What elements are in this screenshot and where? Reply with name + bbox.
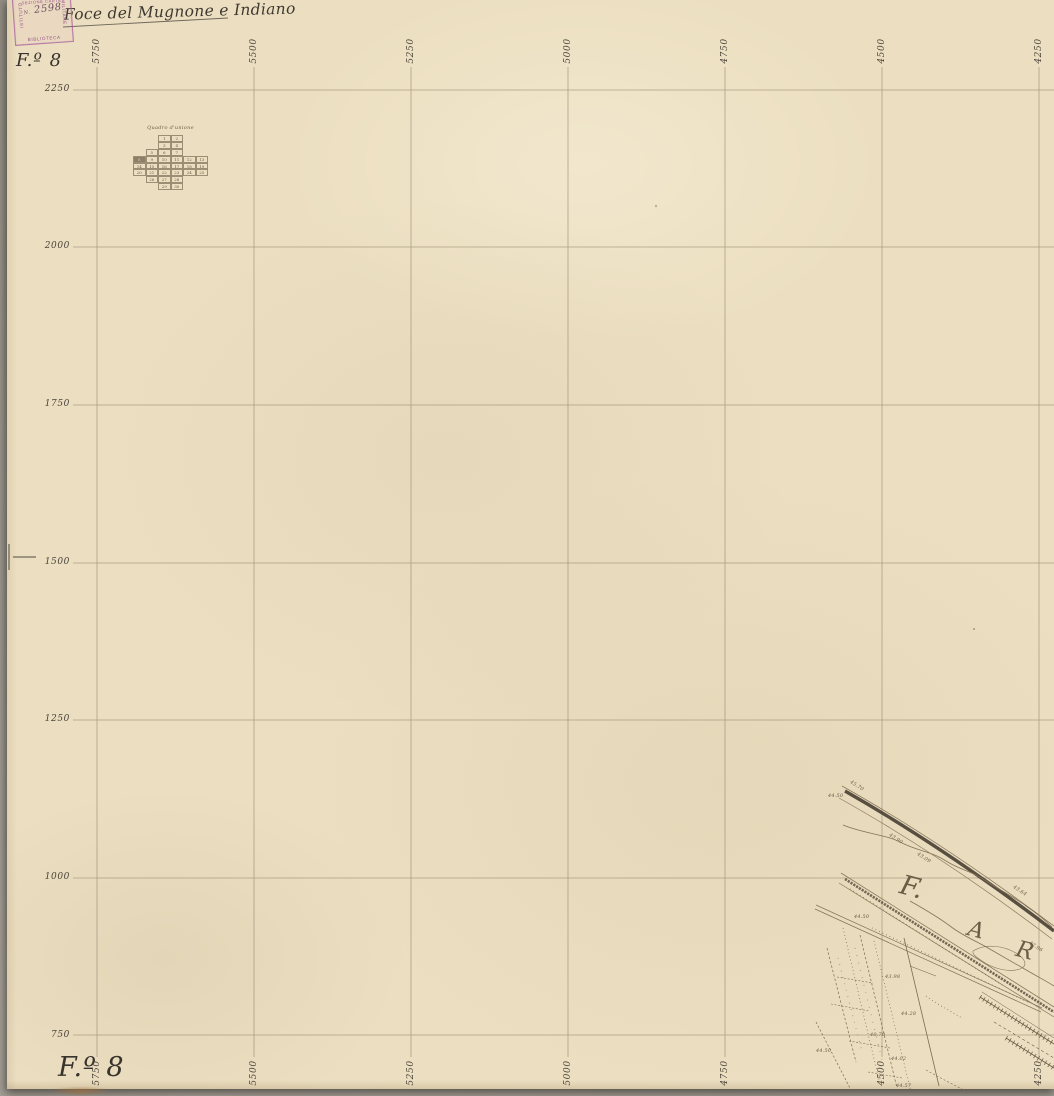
quadro-cell: 3: [158, 142, 171, 149]
grid-label-top: 5500: [249, 34, 259, 68]
quadro-cell: 19: [196, 163, 209, 170]
quadro-cell: 29: [158, 183, 171, 190]
grid-label-left: 750: [18, 1030, 70, 1040]
quadro-cell: 10: [158, 156, 171, 163]
quadro-title: Quadro d'unione: [133, 125, 208, 131]
quadro-cell: 12: [183, 156, 196, 163]
spot-height: 44.50: [854, 914, 869, 920]
grid-label-top: 5750: [92, 34, 102, 68]
quadro-cell: 9: [146, 156, 159, 163]
quadro-cell: 17: [171, 163, 184, 170]
grid-label-left: 2000: [18, 241, 70, 251]
quadro-cell: 22: [158, 169, 171, 176]
stamp-number: 2598: [33, 2, 62, 16]
quadro-cell: 2: [171, 135, 184, 142]
grid-label-left: 1500: [18, 557, 70, 567]
spot-height: 44.28: [901, 1011, 916, 1017]
quadro-cell: 26: [146, 176, 159, 183]
quadro-cell-current: 8: [133, 156, 146, 163]
grid-label-bottom: 4500: [877, 1056, 887, 1090]
quadro-cell: 30: [171, 183, 184, 190]
parcel-boundaries: [816, 928, 964, 1092]
quadro-cell: 4: [171, 142, 184, 149]
quadro-d-unione-index: Quadro d'unione 1 2 3 4 5 6 7 8 9 10 11 …: [133, 125, 208, 190]
spot-height: 40.70: [870, 1032, 885, 1038]
grid-label-bottom: 5000: [563, 1056, 573, 1090]
spot-height: 44.50: [828, 793, 843, 799]
grid-label-bottom: 5500: [249, 1056, 259, 1090]
grid-label-top: 4250: [1034, 34, 1044, 68]
grid-label-bottom: 5250: [406, 1056, 416, 1090]
grid-label-left: 2250: [18, 84, 70, 94]
quadro-cell: 28: [171, 176, 184, 183]
grid-label-left: 1250: [18, 714, 70, 724]
quadro-cell: 1: [158, 135, 171, 142]
quadro-cell: 14: [133, 163, 146, 170]
grid-lines: [73, 67, 1054, 1057]
spot-height: 44.02: [891, 1056, 906, 1062]
grid-label-bottom: 4750: [720, 1056, 730, 1090]
grid-label-top: 5250: [406, 34, 416, 68]
grid-label-top: 5000: [563, 34, 573, 68]
paper-specks: [655, 205, 975, 630]
road-double-line: [815, 905, 1042, 1012]
stamp-number-prefix: N.: [23, 10, 31, 17]
quadro-cell: 25: [196, 169, 209, 176]
quadro-cell: 24: [183, 169, 196, 176]
grid-label-left: 1000: [18, 872, 70, 882]
quadro-cell: 20: [133, 169, 146, 176]
quadro-cell: 23: [171, 169, 184, 176]
quadro-cell: 21: [146, 169, 159, 176]
spot-height: 44.57: [896, 1083, 911, 1089]
quadro-cell: 15: [146, 163, 159, 170]
quadro-cell: 13: [196, 156, 209, 163]
grid-label-bottom: 4250: [1034, 1056, 1044, 1090]
quadro-cell: 16: [158, 163, 171, 170]
spot-height: 44.50: [816, 1048, 831, 1054]
grid-label-bottom: 5750: [92, 1056, 102, 1090]
sand-dots: [838, 948, 882, 1060]
grid-label-top: 4500: [877, 34, 887, 68]
quadro-cell: 6: [158, 149, 171, 156]
quadro-grid: 1 2 3 4 5 6 7 8 9 10 11 12 13 14 15 16 1…: [133, 135, 208, 190]
quadro-cell: 18: [183, 163, 196, 170]
quadro-cell: 7: [171, 149, 184, 156]
library-stamp: GEOGRAFICO ISTITUTO MILITARE SEZIONE CAR…: [11, 0, 74, 46]
quadro-cell: 27: [158, 176, 171, 183]
stamp-bottom-text: BIBLIOTECA: [28, 35, 61, 42]
quadro-cell: 11: [171, 156, 184, 163]
grid-label-top: 4750: [720, 34, 730, 68]
quadro-cell: 5: [146, 149, 159, 156]
grid-label-left: 1750: [18, 399, 70, 409]
spot-height: 43.98: [885, 974, 900, 980]
folio-label-top: F.º 8: [16, 50, 62, 71]
river-embankment-upper: [839, 786, 1054, 939]
